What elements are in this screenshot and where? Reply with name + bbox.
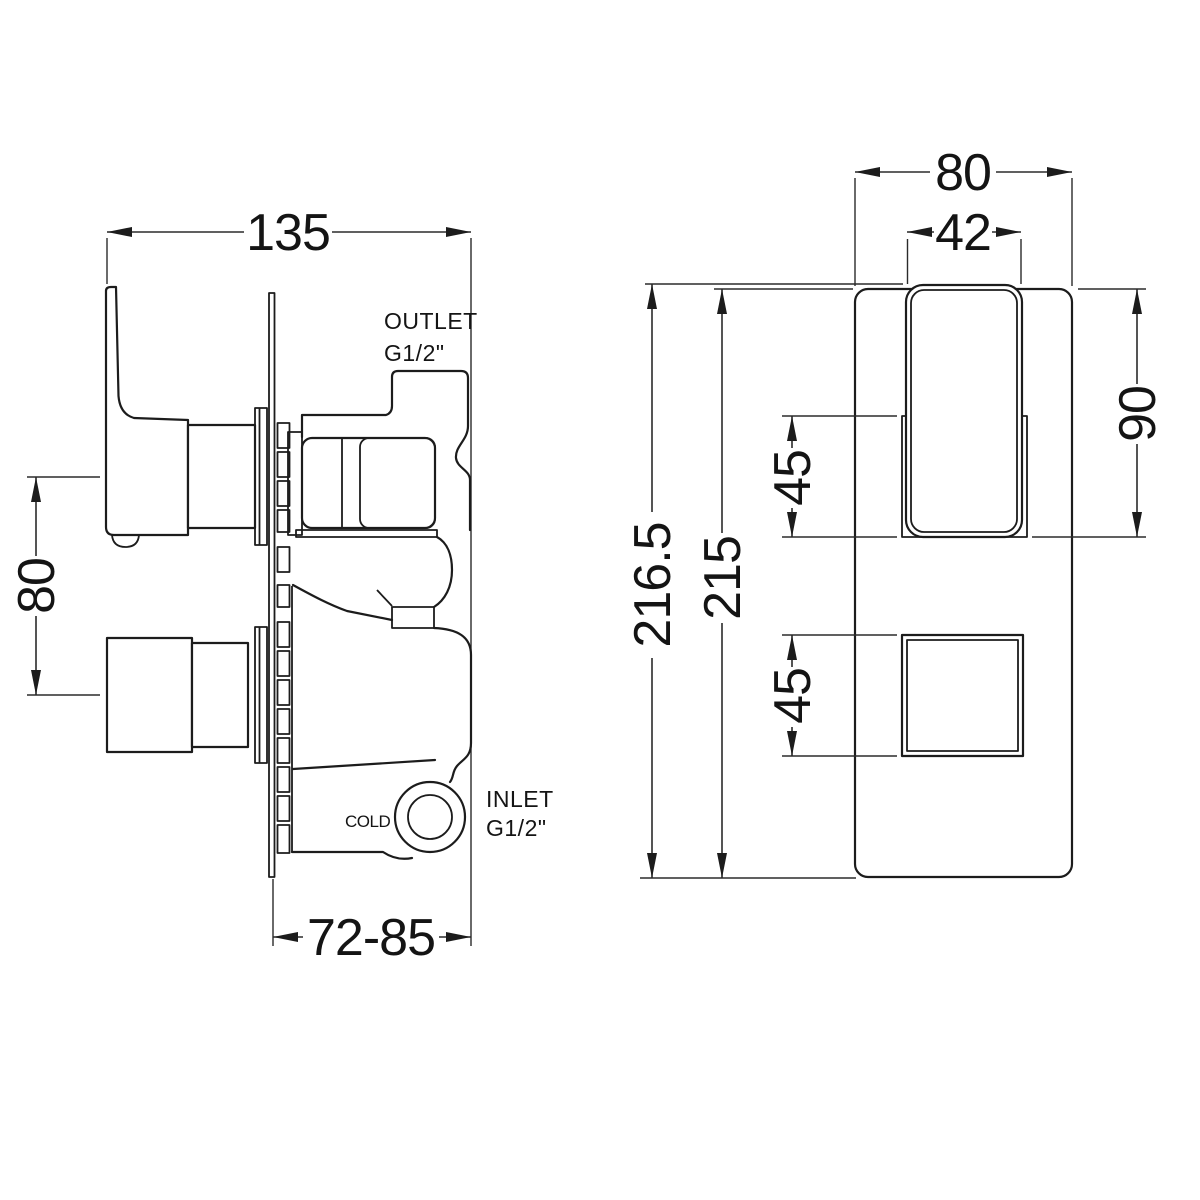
technical-drawing: 135 80 72-85 <box>0 0 1200 1200</box>
dim-arrow-down-icon <box>717 853 727 878</box>
cartridge-housing <box>302 438 435 528</box>
dim-arrow-up-icon <box>31 477 41 502</box>
dim-handle-spacing: 80 <box>8 477 100 695</box>
body-bottom-edge <box>292 852 412 859</box>
dim-arrow-right-icon <box>446 932 471 942</box>
lever-handle-side <box>106 287 188 535</box>
dim-plate-width-value: 80 <box>935 144 991 202</box>
dim-plate-height: 215 <box>694 289 853 878</box>
dim-arrow-right-icon <box>1047 167 1072 177</box>
cone-bottom-edge <box>293 760 435 769</box>
dim-arrow-right-icon <box>446 227 471 237</box>
wall-plate-edge <box>269 293 275 877</box>
escutcheon-lower <box>255 627 267 763</box>
escutcheon-upper <box>255 408 267 545</box>
dim-handle-height-value: 90 <box>1109 386 1167 442</box>
dim-arrow-up-icon <box>1132 289 1142 314</box>
inlet-port-outer <box>395 782 465 852</box>
dim-arrow-left-icon <box>855 167 880 177</box>
dim-plate-height-value: 215 <box>694 536 752 620</box>
cold-label: COLD <box>345 812 390 831</box>
dim-handle-width: 42 <box>907 204 1021 284</box>
dim-depth-range-value: 72-85 <box>307 909 435 967</box>
outlet-label: OUTLET <box>384 308 478 334</box>
handle-pivot-detail <box>112 535 139 547</box>
knob-lower-side <box>107 638 192 752</box>
knob-stem-lower <box>192 643 248 747</box>
dim-lower-control-value: 45 <box>764 668 822 724</box>
body-box <box>392 607 434 628</box>
body-notch <box>377 590 392 606</box>
dim-arrow-up-icon <box>787 635 797 660</box>
dim-handle-opening-value: 45 <box>764 450 822 506</box>
lower-control-outer <box>902 635 1023 756</box>
technical-drawing-page: 135 80 72-85 <box>0 0 1200 1200</box>
dim-arrow-down-icon <box>31 670 41 695</box>
side-view: 135 80 72-85 <box>8 204 554 967</box>
outlet-pipe-outline <box>302 371 470 530</box>
outlet-thread-label: G1/2" <box>384 340 445 366</box>
dim-arrow-up-icon <box>647 284 657 309</box>
dim-overall-height-value: 216.5 <box>624 522 682 647</box>
dim-arrow-right-icon <box>996 227 1021 237</box>
dim-width-value: 135 <box>246 204 330 262</box>
inlet-label: INLET <box>486 786 554 812</box>
dim-arrow-left-icon <box>273 932 298 942</box>
front-view: 80 42 216.5 215 <box>624 144 1167 878</box>
handle-stem-upper <box>188 425 255 528</box>
dim-depth-range: 72-85 <box>273 879 471 967</box>
body-bulge <box>434 537 452 607</box>
dim-arrow-left-icon <box>107 227 132 237</box>
dim-handle-width-value: 42 <box>935 204 991 262</box>
dim-arrow-down-icon <box>647 853 657 878</box>
cartridge-inner <box>360 438 435 528</box>
dim-arrow-down-icon <box>787 512 797 537</box>
inlet-thread-label: G1/2" <box>486 815 547 841</box>
dim-arrow-down-icon <box>1132 512 1142 537</box>
dim-arrow-down-icon <box>787 731 797 756</box>
dim-arrow-up-icon <box>787 416 797 441</box>
dim-handle-spacing-value: 80 <box>8 558 66 614</box>
dim-arrow-up-icon <box>717 289 727 314</box>
dim-arrow-left-icon <box>907 227 932 237</box>
lower-chamber-outline <box>434 628 471 782</box>
lever-handle-front <box>906 285 1022 537</box>
body-flange-bar <box>296 530 437 537</box>
